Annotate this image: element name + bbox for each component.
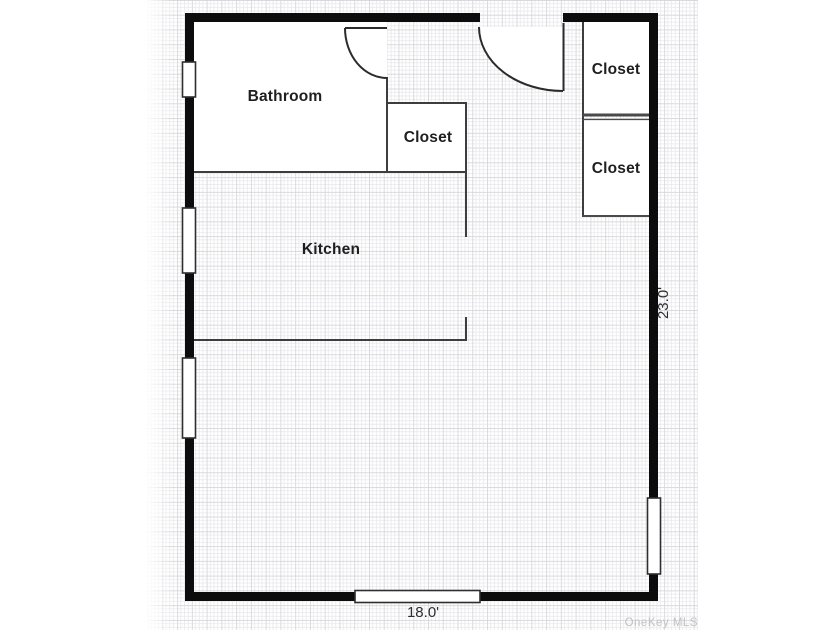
onekey-mls-watermark: OneKey MLS bbox=[625, 617, 698, 629]
window-left-lower bbox=[183, 358, 196, 438]
window-bottom bbox=[355, 591, 480, 603]
right-height-dimension: 23.0' bbox=[655, 287, 672, 319]
top-exterior-wall-right-segment bbox=[563, 13, 658, 22]
floorplan-drawing: Bathroom Closet Kitchen Closet Closet 18… bbox=[0, 0, 840, 630]
upper-right-closet-label: Closet bbox=[592, 61, 641, 78]
top-exterior-wall-left-segment bbox=[185, 13, 480, 22]
kitchen-label: Kitchen bbox=[302, 241, 360, 258]
bathroom-closet-label: Closet bbox=[404, 129, 453, 146]
window-left-upper bbox=[183, 62, 196, 97]
window-left-middle bbox=[183, 208, 196, 273]
bottom-width-dimension: 18.0' bbox=[407, 604, 439, 621]
floorplan-canvas: Bathroom Closet Kitchen Closet Closet 18… bbox=[0, 0, 840, 630]
window-right bbox=[648, 498, 661, 574]
grid-left-fade bbox=[145, 0, 173, 630]
lower-right-closet-label: Closet bbox=[592, 160, 641, 177]
left-exterior-wall bbox=[185, 13, 194, 601]
bathroom-label: Bathroom bbox=[248, 88, 323, 105]
